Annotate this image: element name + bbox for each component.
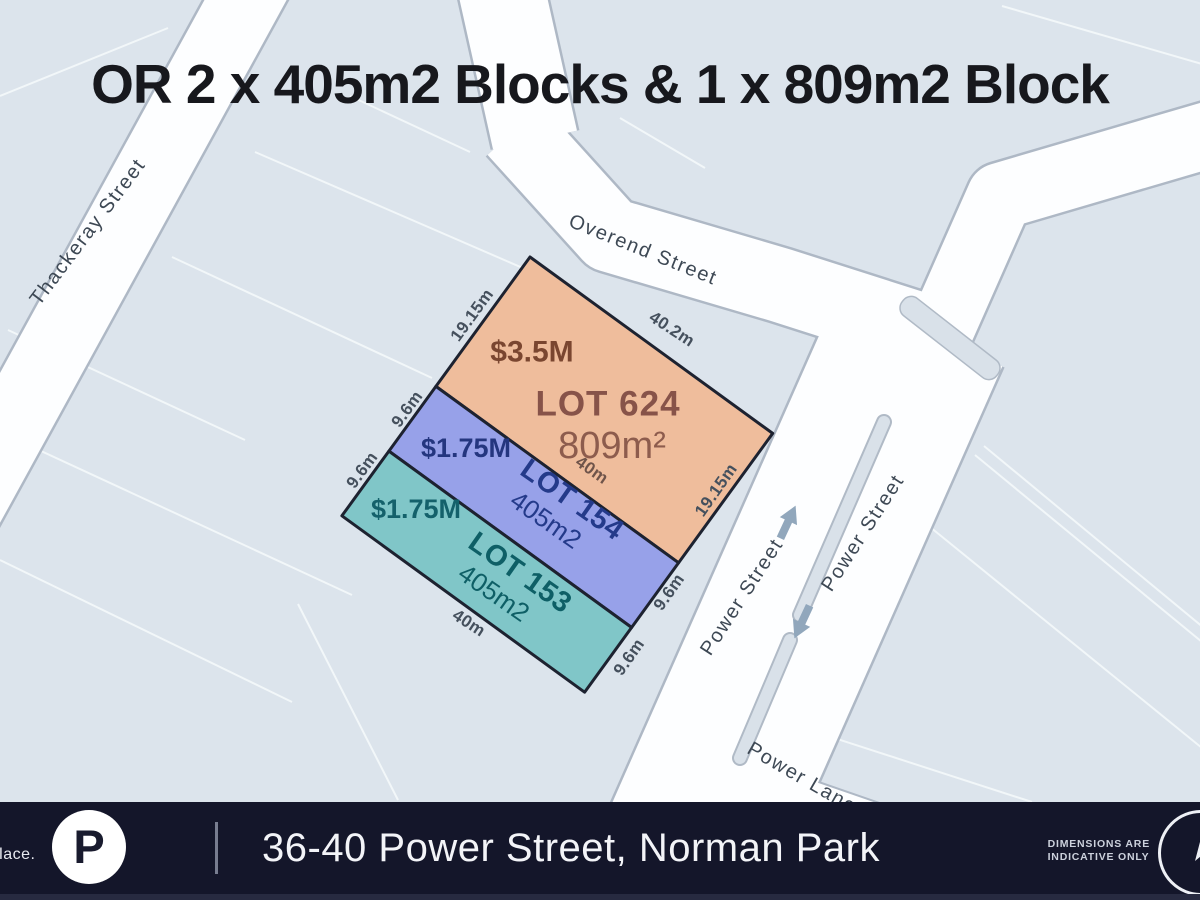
disclaimer-note: DIMENSIONS ARE INDICATIVE ONLY [1048, 838, 1150, 864]
site-map: Thackeray Street Overend Street Power St… [0, 0, 1200, 802]
headline-title: OR 2 x 405m2 Blocks & 1 x 809m2 Block [0, 52, 1200, 116]
footer-divider [215, 822, 218, 874]
lot-154-price: $1.75M [421, 433, 511, 463]
map-canvas: Thackeray Street Overend Street Power St… [0, 0, 1200, 802]
compass-logo [1158, 810, 1200, 896]
footer-bottom-strip [0, 894, 1200, 900]
place-logo-letter: P [73, 819, 104, 874]
lot-624-area: 809m² [558, 425, 666, 467]
disclaimer-line1: DIMENSIONS ARE [1048, 838, 1150, 851]
listing-image: Thackeray Street Overend Street Power St… [0, 0, 1200, 900]
footer-bar: Place. P 36-40 Power Street, Norman Park… [0, 802, 1200, 900]
north-arrow-icon [1179, 831, 1200, 875]
property-address: 36-40 Power Street, Norman Park [262, 826, 880, 871]
lot-624-name: LOT 624 [535, 385, 680, 424]
lot-153-price: $1.75M [371, 494, 461, 524]
brand-wordmark: Place. [0, 846, 35, 864]
place-logo: P [52, 810, 126, 884]
disclaimer-line2: INDICATIVE ONLY [1048, 851, 1150, 864]
lot-624-price: $3.5M [490, 336, 573, 369]
